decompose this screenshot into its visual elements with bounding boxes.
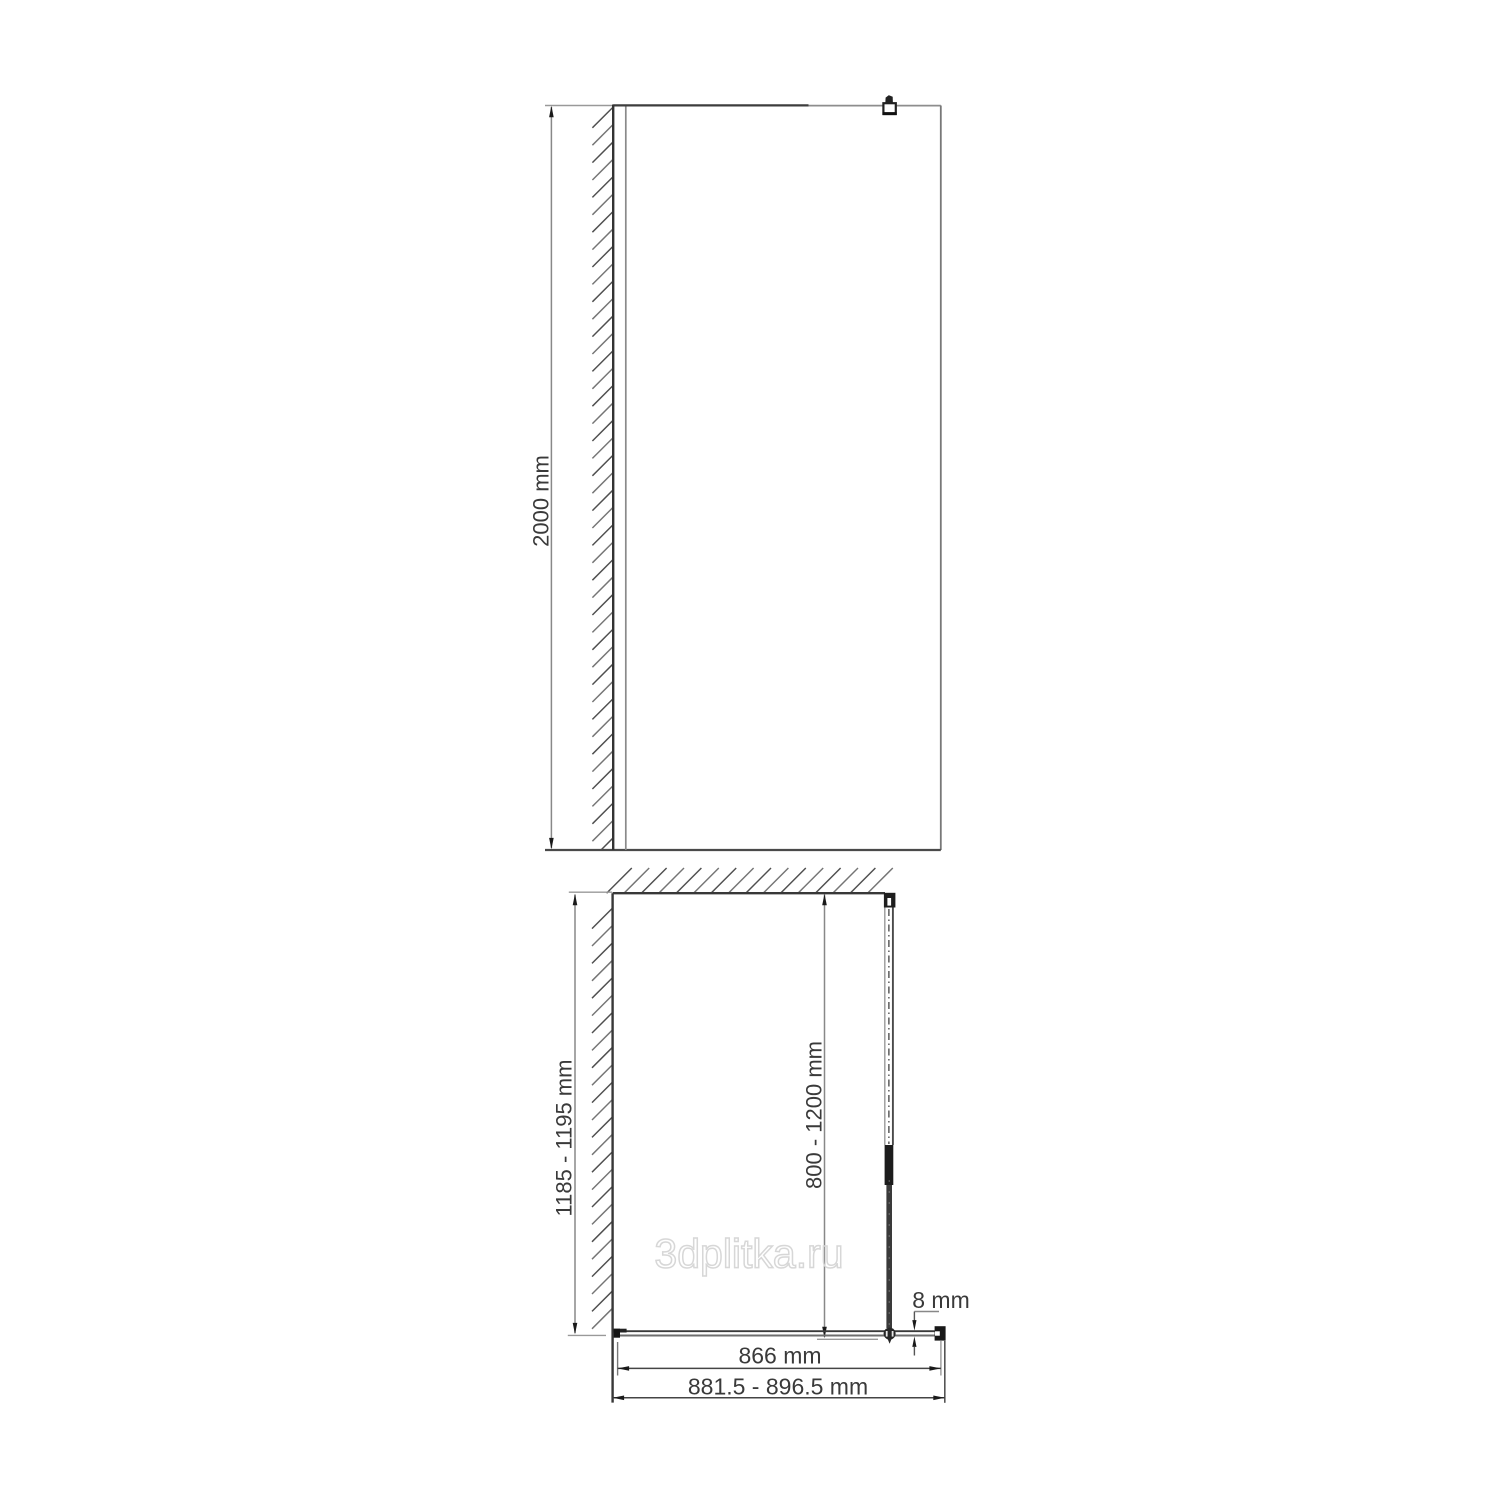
svg-text:8 mm: 8 mm — [912, 1287, 970, 1313]
svg-text:1185 - 1195 mm: 1185 - 1195 mm — [552, 1060, 577, 1217]
svg-text:2000 mm: 2000 mm — [529, 455, 554, 547]
svg-text:881.5 - 896.5 mm: 881.5 - 896.5 mm — [688, 1374, 868, 1400]
svg-text:800 - 1200 mm: 800 - 1200 mm — [802, 1041, 827, 1189]
svg-text:866 mm: 866 mm — [738, 1343, 821, 1369]
svg-text:3dplitka.ru: 3dplitka.ru — [654, 1231, 843, 1277]
